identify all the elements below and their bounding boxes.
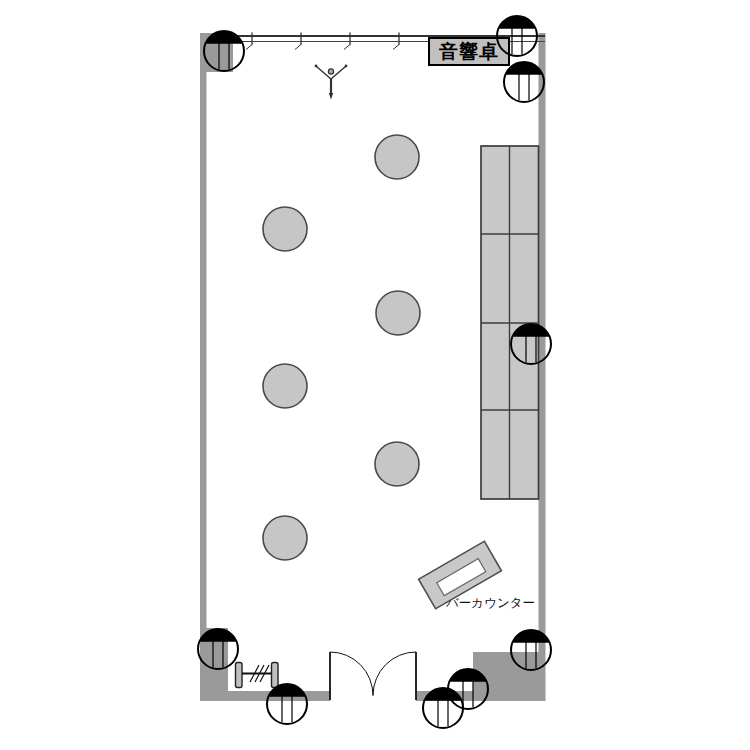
column-symbol <box>504 62 544 102</box>
door-swing-arc-right <box>373 652 416 696</box>
column-symbol <box>267 684 307 724</box>
round-table <box>375 442 419 486</box>
round-table <box>263 364 307 408</box>
mic-stand-arm-tip <box>345 65 348 68</box>
round-table <box>263 207 307 251</box>
column-filled-segment <box>506 62 543 74</box>
window-tick-flick <box>295 45 301 50</box>
window-tick-flick <box>246 45 252 50</box>
bar-counter-label: バーカウンター <box>446 595 535 612</box>
mic-stand-arm-tip <box>315 65 318 68</box>
column-filled-segment <box>425 688 462 700</box>
window-tick-flick <box>393 45 399 50</box>
round-table <box>375 135 419 179</box>
window-tick-flick <box>344 45 350 50</box>
partition-end-cap <box>272 663 279 688</box>
partition-end-cap <box>236 663 243 688</box>
mic-stand-head <box>328 69 333 74</box>
door-swing-arc-left <box>330 652 373 696</box>
round-table <box>376 291 420 335</box>
column-filled-segment <box>206 31 243 43</box>
mic-stand-symbol <box>315 65 348 100</box>
mic-stand-base <box>329 93 333 100</box>
right-wall <box>539 33 546 701</box>
left-wall <box>200 33 207 701</box>
floor-plan-drawing <box>0 0 750 750</box>
floor-plan: 音響卓 バーカウンター <box>0 0 750 750</box>
column-filled-segment <box>499 16 536 28</box>
round-table <box>263 516 307 560</box>
sound-console-label: 音響卓 <box>429 38 509 65</box>
column-symbol <box>423 688 463 728</box>
